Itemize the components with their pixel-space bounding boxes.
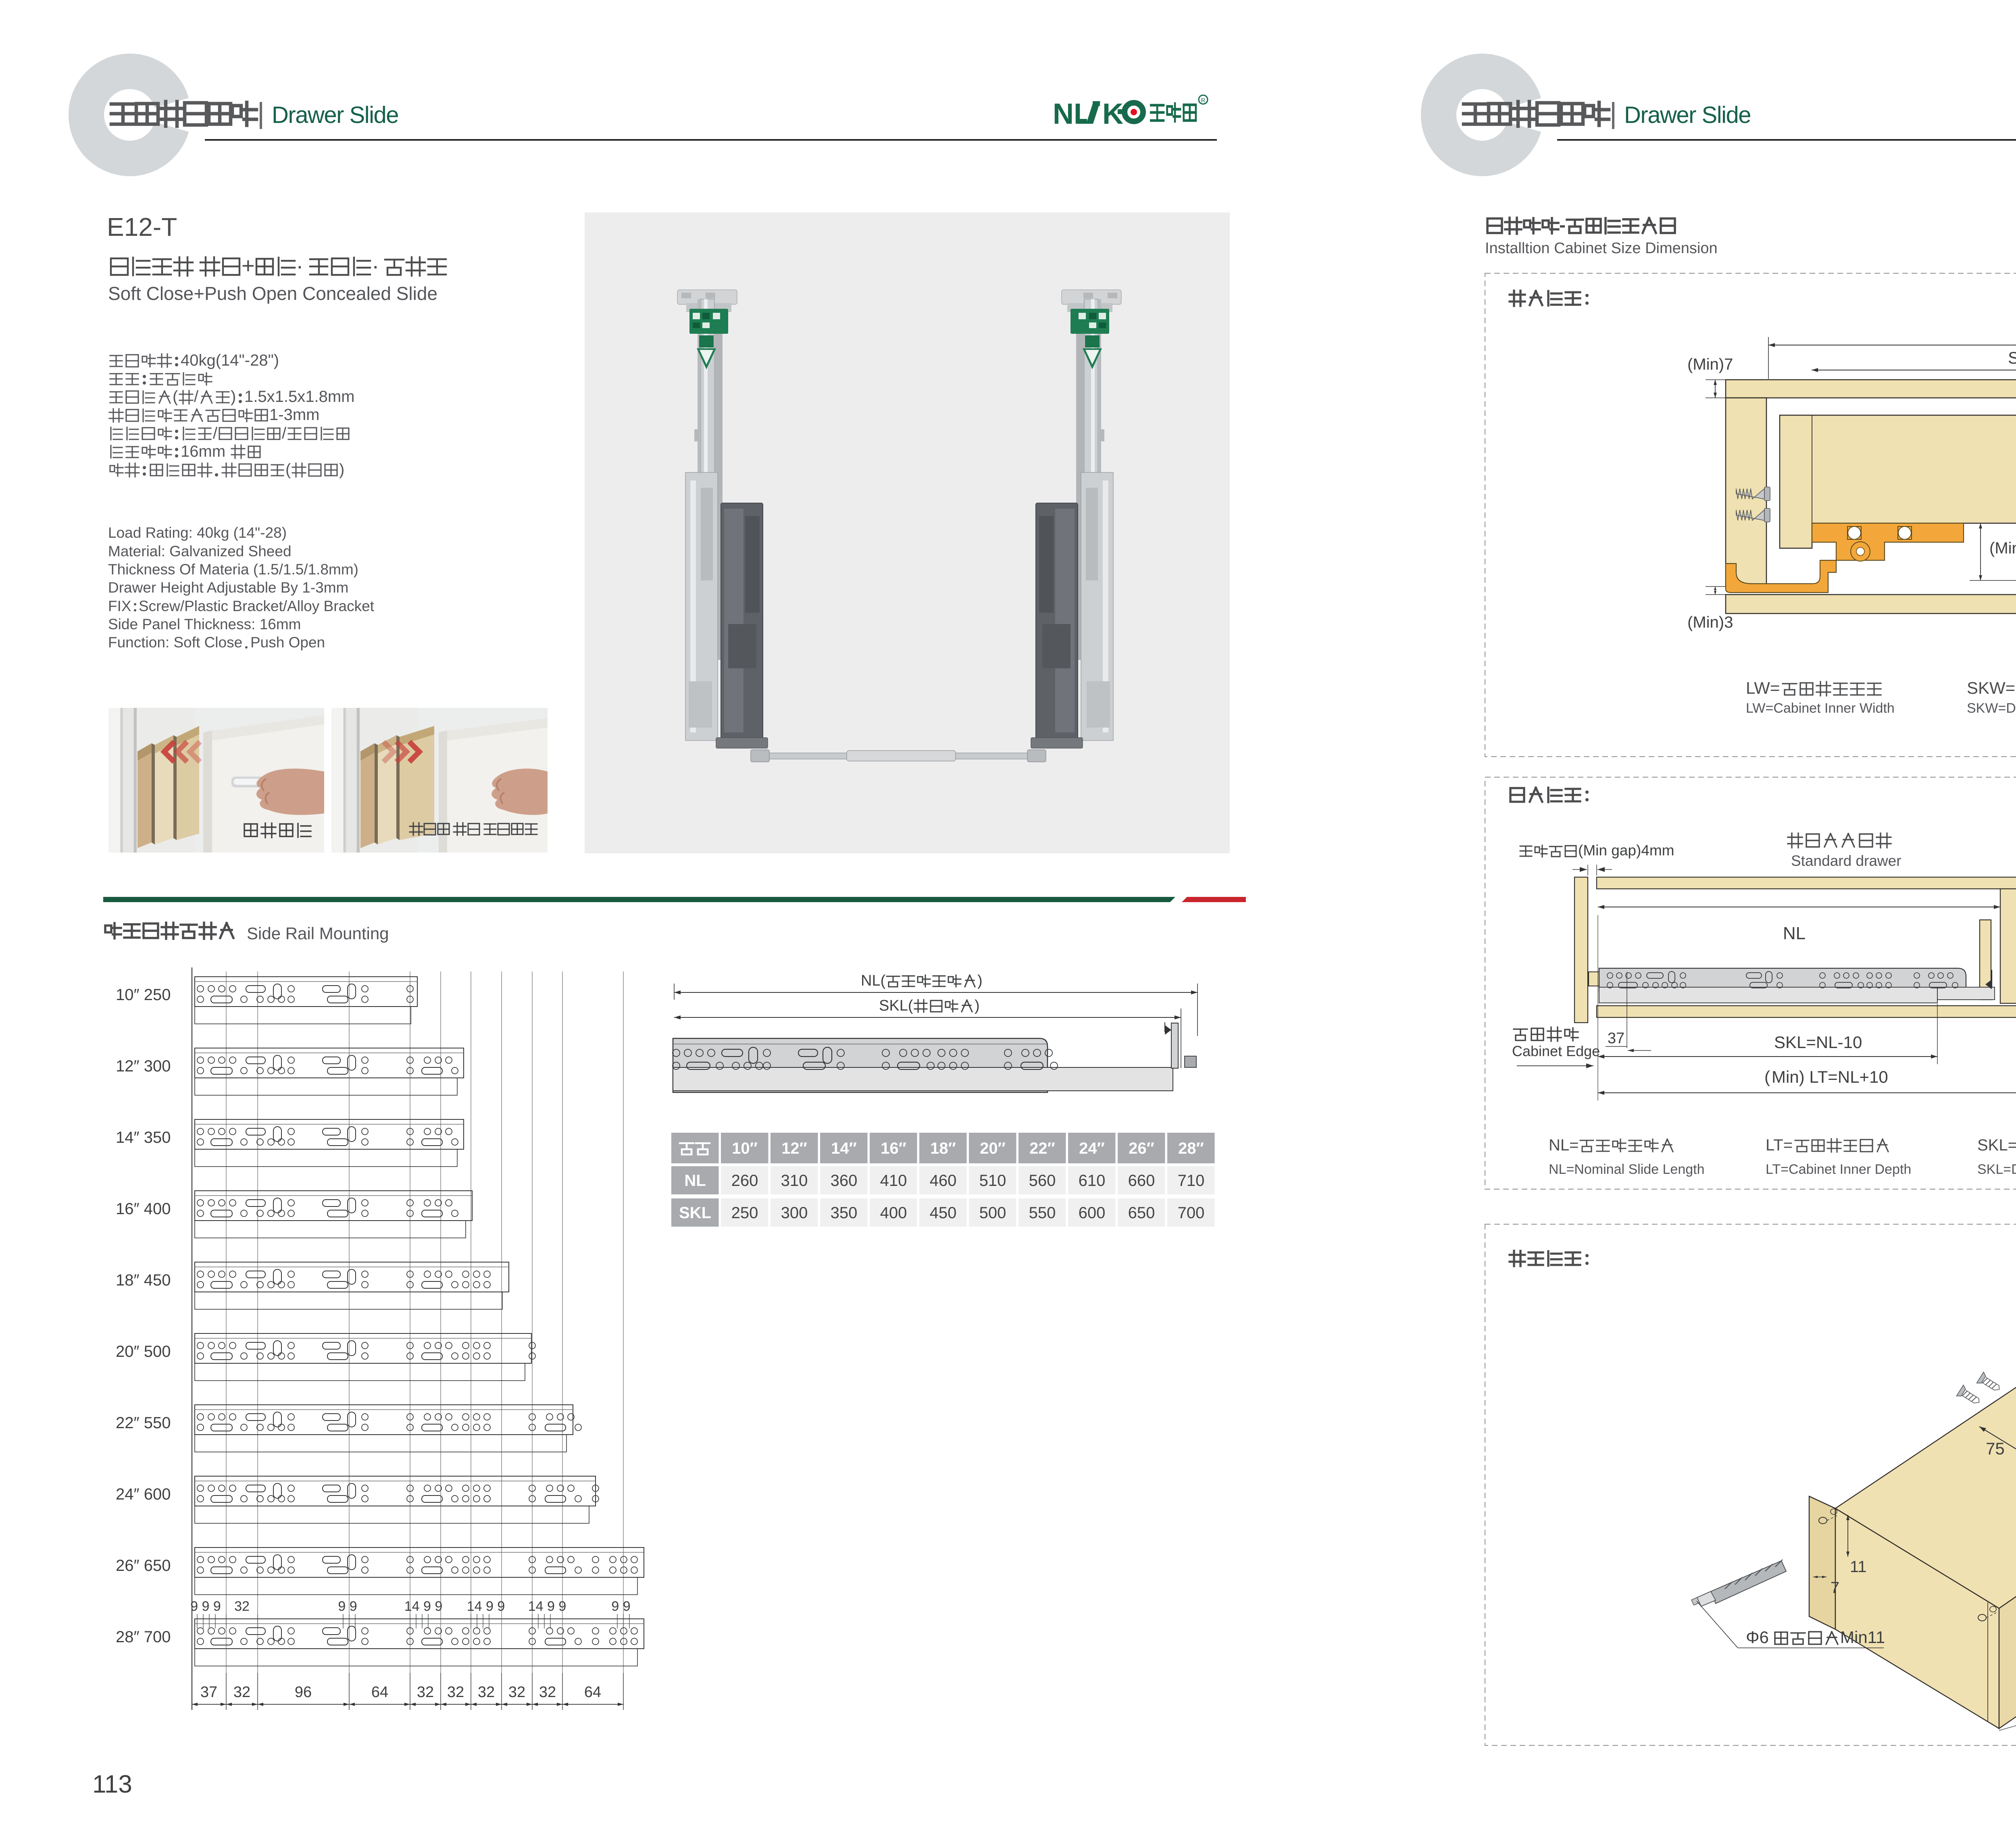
- svg-text:32: 32: [233, 1684, 250, 1701]
- svg-text:/: /: [194, 388, 199, 406]
- svg-text:28″ 700: 28″ 700: [116, 1628, 171, 1646]
- svg-text:(: (: [1764, 1067, 1770, 1086]
- svg-text:(Min)27.5: (Min)27.5: [1989, 539, 2016, 557]
- svg-text:560: 560: [1029, 1172, 1056, 1190]
- svg-text:14 9 9: 14 9 9: [467, 1599, 505, 1614]
- svg-text:(Min)7: (Min)7: [1687, 356, 1733, 373]
- svg-text:Function: Soft Close: Function: Soft Close: [108, 634, 242, 651]
- svg-text:24″: 24″: [1079, 1140, 1105, 1157]
- svg-text:(: (: [285, 461, 291, 478]
- svg-text:260: 260: [731, 1172, 758, 1190]
- svg-text:NL: NL: [1783, 923, 1806, 943]
- svg-text:14″ 350: 14″ 350: [116, 1129, 171, 1146]
- svg-text:Soft Close+Push Open Concealed: Soft Close+Push Open Concealed Slide: [108, 283, 437, 304]
- svg-text:700: 700: [1178, 1204, 1205, 1222]
- svg-text:32: 32: [508, 1684, 525, 1701]
- svg-text:): ): [231, 388, 236, 406]
- svg-text:600: 600: [1079, 1204, 1106, 1222]
- svg-text:12″: 12″: [781, 1140, 807, 1157]
- svg-text:Drawer Height Adjustable By 1-: Drawer Height Adjustable By 1-3mm: [108, 579, 348, 596]
- svg-text:20″ 500: 20″ 500: [116, 1343, 171, 1360]
- svg-text:LW=: LW=: [1746, 678, 1780, 697]
- svg-text:SKW=Drawer Width: SKW=Drawer Width: [1967, 701, 2016, 716]
- svg-text:24″ 600: 24″ 600: [116, 1485, 171, 1503]
- svg-text:E12-T: E12-T: [107, 212, 177, 241]
- svg-text:22″ 550: 22″ 550: [116, 1414, 171, 1432]
- svg-text:96: 96: [295, 1684, 312, 1701]
- svg-text:1.5x1.5x1.8mm: 1.5x1.5x1.8mm: [244, 388, 354, 406]
- svg-text:710: 710: [1178, 1172, 1205, 1190]
- svg-text:SKW=LW-42: SKW=LW-42: [2008, 348, 2016, 367]
- svg-text:): ): [977, 972, 983, 989]
- svg-text:SKL: SKL: [679, 1204, 711, 1222]
- svg-text:Cabinet Edge: Cabinet Edge: [1512, 1043, 1600, 1059]
- svg-text:-: -: [1559, 214, 1566, 236]
- svg-text:14 9 9: 14 9 9: [528, 1599, 566, 1614]
- svg-text:): ): [339, 461, 344, 478]
- svg-text:10″ 250: 10″ 250: [116, 986, 171, 1004]
- svg-text:113: 113: [92, 1770, 132, 1798]
- svg-text:410: 410: [880, 1172, 907, 1190]
- svg-text:26″: 26″: [1129, 1140, 1154, 1157]
- svg-text:Min) LT=NL+10: Min) LT=NL+10: [1772, 1067, 1888, 1086]
- svg-text:Push Open: Push Open: [250, 634, 325, 651]
- svg-text:250: 250: [731, 1204, 758, 1222]
- svg-text:11: 11: [1850, 1558, 1867, 1576]
- svg-text:/: /: [213, 424, 218, 442]
- svg-text:32: 32: [478, 1684, 495, 1701]
- svg-text:9 9 9: 9 9 9: [190, 1599, 221, 1614]
- svg-text:Installtion Cabinet Size Dimen: Installtion Cabinet Size Dimension: [1485, 240, 1718, 257]
- svg-text:64: 64: [584, 1684, 601, 1701]
- svg-text:400: 400: [880, 1204, 907, 1222]
- svg-text:NL=: NL=: [1549, 1136, 1579, 1154]
- svg-text:450: 450: [930, 1204, 957, 1222]
- svg-text:32: 32: [447, 1684, 464, 1701]
- svg-text:SKL=NL-10: SKL=NL-10: [1774, 1033, 1862, 1052]
- svg-text:7: 7: [1831, 1579, 1839, 1597]
- svg-text:+: +: [242, 253, 255, 278]
- svg-text:14″: 14″: [831, 1140, 857, 1157]
- svg-text:9 9: 9 9: [611, 1599, 630, 1614]
- svg-text:75: 75: [1986, 1439, 2005, 1458]
- svg-text:350: 350: [831, 1204, 858, 1222]
- svg-text:LW=Cabinet Inner Width: LW=Cabinet Inner Width: [1746, 701, 1895, 716]
- svg-text:Min11: Min11: [1840, 1628, 1885, 1647]
- svg-text:NI: NI: [1053, 98, 1082, 130]
- svg-text:Drawer Slide: Drawer Slide: [272, 102, 398, 128]
- svg-text:Φ6: Φ6: [1746, 1628, 1769, 1647]
- svg-text:16″ 400: 16″ 400: [116, 1200, 171, 1218]
- svg-text:(Min gap)4mm: (Min gap)4mm: [1578, 842, 1674, 859]
- svg-text:LT=Cabinet Inner Depth: LT=Cabinet Inner Depth: [1766, 1162, 1911, 1177]
- svg-text:Screw/Plastic Bracket/Alloy Br: Screw/Plastic Bracket/Alloy Bracket: [139, 598, 375, 614]
- svg-text:LT=: LT=: [1766, 1136, 1793, 1154]
- svg-text:Thickness Of Materia (1.5/1.5/: Thickness Of Materia (1.5/1.5/1.8mm): [108, 561, 358, 578]
- svg-text:NL: NL: [684, 1172, 706, 1190]
- svg-text:18″: 18″: [930, 1140, 956, 1157]
- svg-text:22″: 22″: [1029, 1140, 1055, 1157]
- svg-text:12″ 300: 12″ 300: [116, 1057, 171, 1075]
- svg-text:18″ 450: 18″ 450: [116, 1271, 171, 1289]
- svg-text:16mm: 16mm: [181, 443, 225, 460]
- svg-text:32: 32: [417, 1684, 434, 1701]
- svg-text:14 9 9: 14 9 9: [404, 1599, 443, 1614]
- svg-text:16″: 16″: [881, 1140, 906, 1157]
- svg-text:(Min)3: (Min)3: [1687, 614, 1733, 631]
- svg-text:310: 310: [781, 1172, 808, 1190]
- svg-text:Drawer Slide: Drawer Slide: [1624, 102, 1751, 128]
- svg-text:550: 550: [1029, 1204, 1056, 1222]
- svg-text:SKL(: SKL(: [879, 997, 913, 1014]
- svg-text:650: 650: [1128, 1204, 1155, 1222]
- svg-text:·: ·: [296, 253, 304, 278]
- svg-text:Standard drawer: Standard drawer: [1791, 853, 1901, 869]
- svg-text:510: 510: [979, 1172, 1006, 1190]
- svg-text:Side Panel Thickness: 16mm: Side Panel Thickness: 16mm: [108, 616, 301, 632]
- svg-text:37: 37: [200, 1684, 217, 1701]
- svg-text:64: 64: [371, 1684, 388, 1701]
- svg-text:·: ·: [372, 253, 379, 278]
- svg-text:28″: 28″: [1178, 1140, 1204, 1157]
- svg-text:9 9: 9 9: [338, 1599, 357, 1614]
- svg-text:26″ 650: 26″ 650: [116, 1557, 171, 1575]
- svg-text:37: 37: [1608, 1030, 1624, 1047]
- svg-text:360: 360: [831, 1172, 858, 1190]
- svg-text:610: 610: [1079, 1172, 1106, 1190]
- svg-text:Load Rating: 40kg (14"-28): Load Rating: 40kg (14"-28): [108, 524, 287, 541]
- svg-text:SKL=Drawer Length: SKL=Drawer Length: [1977, 1162, 2016, 1177]
- svg-text:NL(: NL(: [861, 972, 886, 989]
- svg-text:SKL=: SKL=: [1977, 1136, 2016, 1154]
- svg-text:NL=Nominal Slide Length: NL=Nominal Slide Length: [1549, 1162, 1705, 1177]
- svg-text:(: (: [173, 388, 178, 406]
- svg-text:): ): [975, 997, 980, 1014]
- svg-text:300: 300: [781, 1204, 808, 1222]
- svg-text:FIX: FIX: [108, 598, 131, 614]
- svg-text:Material: Galvanized Sheed: Material: Galvanized Sheed: [108, 543, 292, 560]
- svg-text:10″: 10″: [732, 1140, 758, 1157]
- svg-text:40kg(14"-28"): 40kg(14"-28"): [181, 352, 279, 369]
- svg-text:SKW=: SKW=: [1967, 678, 2015, 697]
- svg-text:32: 32: [539, 1684, 556, 1701]
- svg-text:460: 460: [930, 1172, 957, 1190]
- svg-text:500: 500: [979, 1204, 1006, 1222]
- svg-text:Side Rail Mounting: Side Rail Mounting: [247, 924, 389, 943]
- svg-text:/: /: [282, 424, 287, 442]
- svg-text:R: R: [1201, 97, 1206, 104]
- svg-text:1-3mm: 1-3mm: [269, 406, 319, 424]
- svg-text:660: 660: [1128, 1172, 1155, 1190]
- svg-text:20″: 20″: [980, 1140, 1006, 1157]
- svg-text:32: 32: [234, 1599, 250, 1614]
